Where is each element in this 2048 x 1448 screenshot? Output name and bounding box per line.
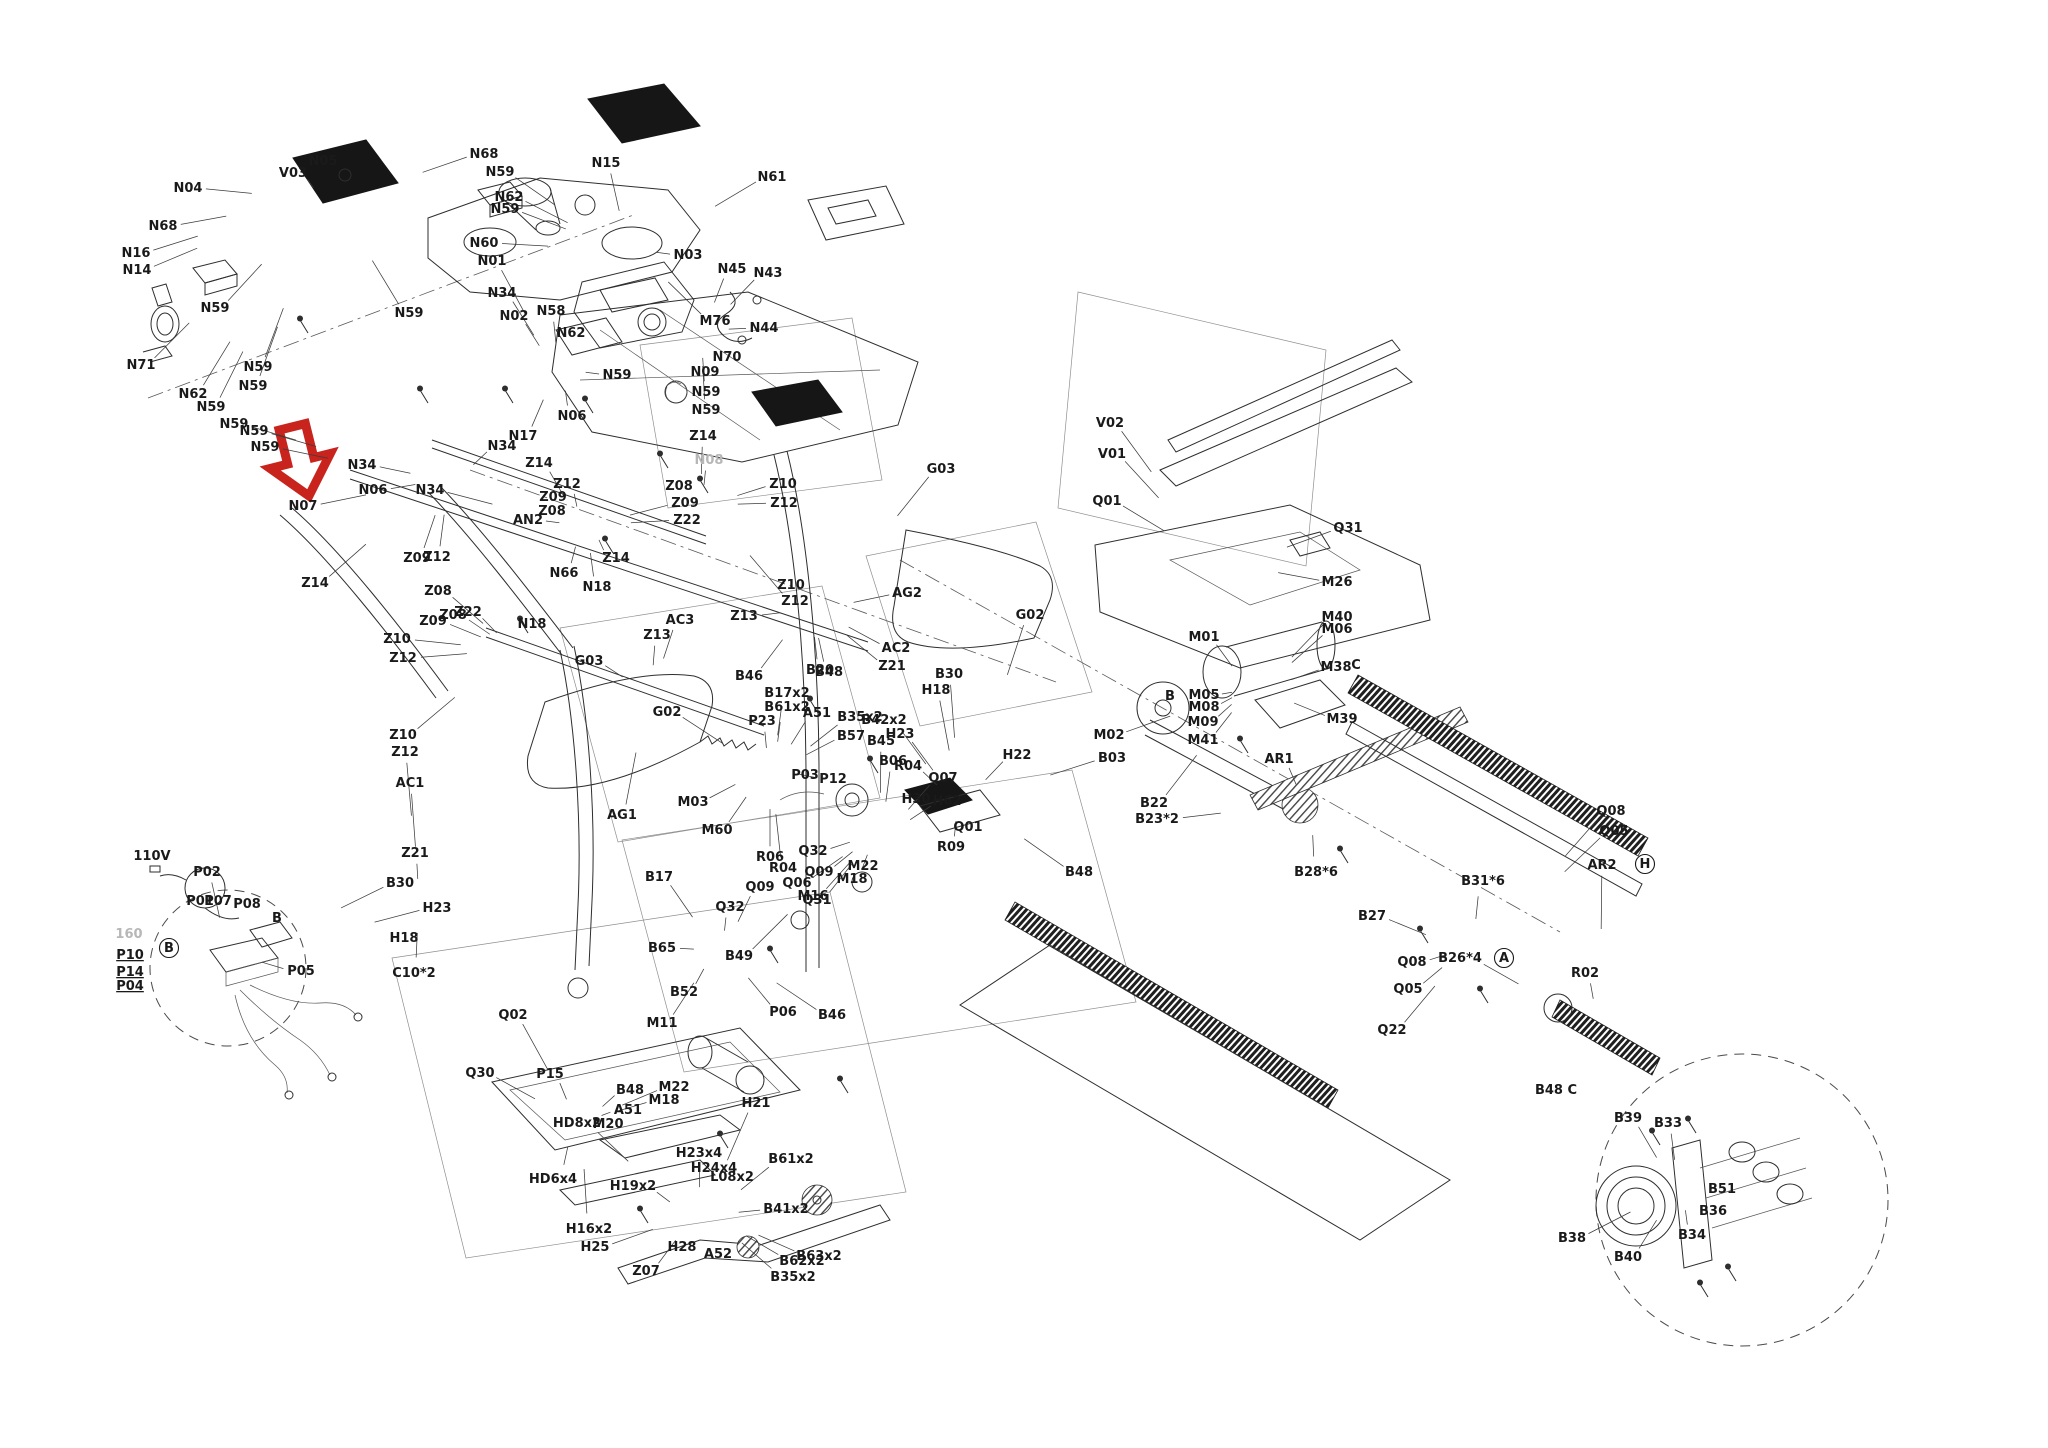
relay-p08 [250, 922, 292, 947]
part-label-N68: N68 [149, 219, 178, 234]
part-label-N01: N01 [478, 254, 507, 269]
part-label-B61x2: B61x2 [768, 1152, 813, 1167]
part-label-B46: B46 [735, 669, 763, 684]
part-label-N16: N16 [122, 246, 151, 261]
leader-line [748, 978, 770, 1005]
leader-line [704, 471, 705, 485]
part-label-N66: N66 [550, 566, 579, 581]
part-label-N62: N62 [557, 326, 586, 341]
projection-plane [560, 586, 880, 842]
part-label-AR1: AR1 [1264, 752, 1293, 767]
wire-end [285, 1091, 293, 1099]
motor-cover-q01 [1095, 505, 1430, 668]
leader-line [1166, 755, 1197, 795]
part-label-Z22: Z22 [454, 605, 482, 620]
leader-line [1294, 703, 1325, 716]
leader-line [380, 467, 411, 473]
cross-member [486, 637, 764, 735]
plug-prong [150, 866, 160, 872]
speaker-pad-left [293, 140, 398, 203]
part-label-Z08: Z08 [665, 479, 693, 494]
leader-line [1222, 692, 1232, 694]
endcap-b38 [1596, 1166, 1676, 1246]
leader-line [590, 553, 593, 576]
part-label-N06: N06 [359, 483, 388, 498]
part-label-M02: M02 [1093, 728, 1124, 743]
wire-end [328, 1073, 336, 1081]
wire-end [354, 1013, 362, 1021]
part-label-M01: M01 [1188, 630, 1219, 645]
leader-line [423, 157, 467, 172]
harness-wire [240, 990, 330, 1075]
part-label-H30: H30 [902, 792, 931, 807]
part-label-Q05: Q05 [1393, 982, 1422, 997]
part-label-Q01: Q01 [953, 820, 982, 835]
leader-line [1125, 461, 1159, 497]
part-label-N07: N07 [289, 499, 318, 514]
part-label-P07: P07 [204, 894, 232, 909]
leader-line [603, 1096, 615, 1107]
leader-line [262, 962, 283, 968]
part-label-M38: M38 [1320, 660, 1351, 675]
running-belt-strip [1005, 902, 1338, 1108]
leader-line [1183, 813, 1221, 817]
part-label-B: B [164, 941, 174, 956]
part-label-Z21: Z21 [401, 846, 429, 861]
leader-line [418, 697, 455, 728]
part-label-N59: N59 [692, 403, 721, 418]
cup-insert-bottom [536, 221, 560, 235]
part-label-N34: N34 [488, 439, 517, 454]
part-label-Z21: Z21 [878, 659, 906, 674]
part-label-M11: M11 [646, 1016, 677, 1031]
part-label-Z12: Z12 [781, 594, 809, 609]
leader-line [611, 173, 619, 210]
part-label-A51: A51 [803, 706, 831, 721]
leader-line [1024, 839, 1063, 867]
leader-line [448, 492, 493, 504]
part-label-N02: N02 [500, 309, 529, 324]
leader-line [986, 762, 1003, 780]
endcap-b38-inner [1618, 1188, 1654, 1224]
leader-line [819, 638, 824, 662]
belt-strip-v02 [1168, 340, 1400, 452]
leader-line [714, 279, 723, 303]
leader-line [1601, 876, 1602, 929]
leader-line [496, 1078, 535, 1099]
endcap-b38-mid [1607, 1177, 1665, 1235]
part-label-Q30: Q30 [465, 1066, 494, 1081]
part-label-M76: M76 [699, 314, 730, 329]
leader-line [181, 216, 226, 224]
part-label-B48: B48 [1065, 865, 1093, 880]
leader-line [412, 794, 416, 847]
part-label-Q06: Q06 [782, 876, 811, 891]
part-label-Z14: Z14 [301, 576, 329, 591]
fan-blade [666, 381, 687, 401]
leader-line [206, 189, 252, 193]
part-label-B63x2: B63x2 [796, 1249, 841, 1264]
part-label-P02: P02 [193, 865, 221, 880]
part-label-H23x4: H23x4 [676, 1146, 722, 1161]
leader-line [469, 620, 490, 634]
part-label-N58: N58 [537, 304, 566, 319]
part-label-P04: P04 [116, 979, 144, 994]
part-label-N59: N59 [692, 385, 721, 400]
motor-cover-recess [1170, 532, 1360, 605]
highlight-arrow [262, 420, 339, 504]
part-label-Z14: Z14 [602, 551, 630, 566]
part-label-P06: P06 [769, 1005, 797, 1020]
part-label-B30: B30 [935, 667, 963, 682]
part-label-B36: B36 [1699, 1204, 1727, 1219]
part-label-M06: M06 [1321, 622, 1352, 637]
part-label-Z10: Z10 [777, 578, 805, 593]
part-label-M26: M26 [1321, 575, 1352, 590]
part-label-M41: M41 [1187, 733, 1218, 748]
leader-line [630, 505, 667, 515]
leader-line [1278, 573, 1319, 581]
part-label-H19x2: H19x2 [610, 1179, 656, 1194]
part-label-C10*2: C10*2 [392, 966, 435, 981]
part-label-B57: B57 [837, 729, 865, 744]
part-label-Z12: Z12 [391, 745, 419, 760]
overlay-sheet [808, 186, 904, 240]
part-label-Z08: Z08 [424, 584, 452, 599]
part-label-G02: G02 [1016, 608, 1045, 623]
leader-line [417, 864, 418, 879]
leader-line [806, 740, 834, 755]
safety-key [152, 284, 172, 306]
part-label-N15: N15 [592, 156, 621, 171]
hub-p12 [836, 784, 868, 816]
handlebar-loop-left [527, 674, 712, 788]
incline-motor-m11 [688, 1036, 712, 1068]
part-label-L08x2: L08x2 [710, 1170, 754, 1185]
leader-line [571, 547, 575, 564]
leader-line [729, 328, 746, 329]
part-label-Q02: Q02 [498, 1008, 527, 1023]
leader-line [523, 1024, 548, 1069]
part-label-N71: N71 [127, 358, 156, 373]
part-label-B17x2: B17x2 [764, 686, 809, 701]
leader-line [525, 201, 567, 222]
part-label-AN2: AN2 [513, 513, 543, 528]
part-label-B65: B65 [648, 941, 676, 956]
part-label-N61: N61 [758, 170, 787, 185]
leader-line [753, 914, 788, 949]
part-label-AC3: AC3 [666, 613, 695, 628]
leader-line [791, 721, 805, 744]
part-label-G03: G03 [927, 462, 956, 477]
part-label-B30: B30 [386, 876, 414, 891]
part-label-Z14: Z14 [525, 456, 553, 471]
part-label-N34: N34 [488, 286, 517, 301]
leader-line [761, 640, 782, 668]
part-label-H25: H25 [581, 1240, 610, 1255]
part-label-N59: N59 [239, 379, 268, 394]
key-ring [151, 306, 179, 342]
part-label-N59: N59 [240, 424, 269, 439]
leader-line [765, 732, 766, 748]
leader-line [586, 372, 599, 374]
part-label-B33: B33 [1654, 1116, 1682, 1131]
leader-line [710, 784, 736, 797]
deck-board [960, 945, 1450, 1240]
cross-member [486, 628, 764, 726]
leader-line [341, 887, 383, 908]
part-label-N59: N59 [491, 202, 520, 217]
part-label-A52: A52 [704, 1247, 732, 1262]
leader-line [1221, 698, 1232, 704]
wire-connector [738, 336, 746, 344]
part-label-B49: B49 [725, 949, 753, 964]
part-label-N59: N59 [244, 360, 273, 375]
leader-line [598, 1132, 628, 1161]
part-label-Z12: Z12 [389, 651, 417, 666]
part-label-R04: R04 [894, 759, 922, 774]
part-label-V02: V02 [1096, 416, 1124, 431]
leader-line [584, 1169, 587, 1213]
leader-line [265, 308, 283, 357]
part-label-B41x2: B41x2 [763, 1202, 808, 1217]
leader-line [532, 400, 544, 427]
handlebar-n07 [292, 508, 448, 691]
incline-motor-body [702, 1068, 744, 1092]
leader-line [612, 1229, 653, 1243]
part-label-N34: N34 [348, 458, 377, 473]
leader-line [1292, 624, 1324, 657]
part-label-Z10: Z10 [383, 632, 411, 647]
part-label-N09: N09 [691, 365, 720, 380]
part-label-P08: P08 [233, 897, 261, 912]
part-label-P03: P03 [791, 768, 819, 783]
detail-circle-b48c [1596, 1054, 1888, 1346]
part-label-Z12: Z12 [770, 496, 798, 511]
part-label-N68: N68 [470, 147, 499, 162]
part-label-N59: N59 [395, 306, 424, 321]
part-label-H: H [1640, 857, 1651, 872]
part-label-AG2: AG2 [892, 586, 922, 601]
part-label-V01: V01 [1098, 447, 1126, 462]
overlay-window [828, 200, 876, 224]
key-ring-inner [157, 313, 173, 335]
leader-line [653, 646, 655, 666]
display-speaker-inner [644, 314, 660, 330]
leader-line [631, 521, 669, 523]
part-label-HD8x2: HD8x2 [553, 1116, 601, 1131]
part-label-R02: R02 [1571, 966, 1599, 981]
part-label-Q32: Q32 [715, 900, 744, 915]
leader-line [727, 1113, 748, 1161]
part-label-H28: H28 [668, 1240, 697, 1255]
leader-line [1588, 1212, 1630, 1234]
part-label-M09: M09 [1187, 715, 1218, 730]
part-label-AC1: AC1 [396, 776, 425, 791]
leader-line [738, 503, 766, 504]
leader-line [657, 1192, 670, 1202]
leader-line [372, 261, 398, 305]
leader-line [940, 701, 949, 751]
leader-line [626, 753, 636, 805]
part-label-B48 C: B48 C [1535, 1083, 1577, 1098]
leader-line [1292, 635, 1323, 662]
leader-line [602, 1112, 611, 1115]
part-label-C: C [1351, 658, 1361, 673]
leader-line [811, 725, 838, 746]
part-label-N18: N18 [518, 617, 547, 632]
part-label-P05: P05 [287, 964, 315, 979]
leader-line [421, 654, 467, 658]
leader-line [560, 1083, 567, 1099]
part-label-N03: N03 [674, 248, 703, 263]
leader-line [656, 252, 670, 254]
leader-line [729, 797, 746, 822]
part-label-N59: N59 [486, 165, 515, 180]
leader-line [737, 487, 765, 496]
part-label-A: A [1499, 951, 1509, 966]
diagram-canvas: Exploded parts diagram of a folding trea… [0, 0, 2048, 1448]
display-speaker [638, 308, 666, 336]
display-screen [600, 278, 668, 312]
roller-b36 [1729, 1142, 1755, 1162]
motor-body [1226, 622, 1322, 647]
part-label-R09: R09 [937, 840, 965, 855]
leader-line [762, 613, 780, 615]
part-label-V03: V03 [279, 166, 307, 181]
leader-line [415, 640, 461, 645]
cable-p03 [780, 792, 824, 800]
speaker-box-left-body [205, 274, 237, 295]
part-label-B39: B39 [1614, 1111, 1642, 1126]
part-label-P10: P10 [116, 948, 144, 963]
axle [1700, 1138, 1800, 1168]
part-label-R04: R04 [769, 861, 797, 876]
leader-line [831, 842, 850, 848]
part-label-M18: M18 [836, 872, 867, 887]
part-label-HD6x4: HD6x4 [529, 1172, 577, 1187]
part-label-Z14: Z14 [689, 429, 717, 444]
part-label-B23*2: B23*2 [1135, 812, 1179, 827]
part-label-Q01: Q01 [1092, 494, 1121, 509]
part-label-B31*6: B31*6 [1461, 874, 1505, 889]
leader-line [886, 772, 890, 802]
part-label-N06: N06 [558, 409, 587, 424]
part-label-Z22: Z22 [673, 513, 701, 528]
leader-line [1313, 835, 1314, 856]
part-label-N59: N59 [603, 368, 632, 383]
leader-line [696, 969, 704, 984]
part-label-A51: A51 [614, 1103, 642, 1118]
part-label-H23: H23 [423, 901, 452, 916]
part-label-B46: B46 [818, 1008, 846, 1023]
speaker-pad-right [588, 84, 700, 143]
leader-line [424, 515, 435, 548]
upright-roller [568, 978, 588, 998]
part-label-B35x2: B35x2 [770, 1270, 815, 1285]
speaker-box-left [193, 260, 237, 283]
part-label-H62: H62 [933, 794, 962, 809]
part-label-P15: P15 [536, 1067, 564, 1082]
leader-line [854, 595, 890, 602]
part-label-N44: N44 [750, 321, 779, 336]
leader-line [680, 948, 694, 949]
controller-side [226, 958, 278, 986]
leader-line [847, 635, 877, 660]
leader-line [897, 477, 928, 516]
leader-line [599, 540, 604, 550]
part-label-M60: M60 [701, 823, 732, 838]
leader-line [1476, 896, 1478, 919]
upright-left [560, 650, 579, 970]
part-label-N34: N34 [416, 483, 445, 498]
part-label-B17: B17 [645, 870, 673, 885]
hub-p12-inner [845, 793, 859, 807]
diagram-line-art [143, 84, 1888, 1346]
part-label-H18: H18 [390, 931, 419, 946]
leader-line [731, 280, 755, 304]
part-label-N59: N59 [251, 440, 280, 455]
motor-tray-q30 [492, 1028, 800, 1150]
part-label-N04: N04 [174, 181, 203, 196]
part-label-M03: M03 [677, 795, 708, 810]
part-label-Q08: Q08 [1397, 955, 1426, 970]
part-label-B52: B52 [670, 985, 698, 1000]
part-label-M39: M39 [1326, 712, 1357, 727]
part-label-G03: G03 [575, 654, 604, 669]
leader-line [951, 685, 955, 738]
part-label-AR2: AR2 [1587, 858, 1616, 873]
leader-line [564, 1147, 568, 1165]
part-label-AG1: AG1 [607, 808, 637, 823]
part-label-N14: N14 [123, 263, 152, 278]
roller-b33 [1777, 1184, 1803, 1204]
part-label-B48: B48 [815, 665, 843, 680]
leader-line [1685, 1210, 1687, 1224]
part-label-N08: N08 [695, 453, 724, 468]
part-label-N45: N45 [718, 262, 747, 277]
incline-motor-end [736, 1066, 764, 1094]
leader-line [715, 182, 756, 206]
part-label-H16x2: H16x2 [566, 1222, 612, 1237]
leader-line [671, 885, 693, 917]
part-label-B51: B51 [1708, 1182, 1736, 1197]
leader-line [154, 248, 197, 266]
part-label-N59: N59 [201, 301, 230, 316]
cup-holder-right [602, 227, 662, 259]
console-display [574, 262, 694, 348]
part-label-Q05: Q05 [1599, 824, 1628, 839]
part-label-B26*4: B26*4 [1438, 951, 1482, 966]
projection-plane [866, 522, 1092, 726]
leader-line [375, 910, 420, 922]
leader-line [329, 544, 366, 576]
part-label-Z13: Z13 [643, 628, 671, 643]
part-label-160: 160 [115, 927, 142, 942]
part-label-B27: B27 [1358, 909, 1386, 924]
part-label-N70: N70 [713, 350, 742, 365]
part-label-Q31: Q31 [1333, 521, 1362, 536]
part-label-Z10: Z10 [769, 477, 797, 492]
part-label-Z09: Z09 [419, 614, 447, 629]
part-label-N43: N43 [754, 266, 783, 281]
projection-plane [622, 770, 1136, 1072]
part-label-B38: B38 [1558, 1231, 1586, 1246]
part-label-N59: N59 [197, 400, 226, 415]
leader-line [1123, 506, 1164, 531]
leader-line [739, 1210, 760, 1212]
part-label-AC2: AC2 [882, 641, 911, 656]
